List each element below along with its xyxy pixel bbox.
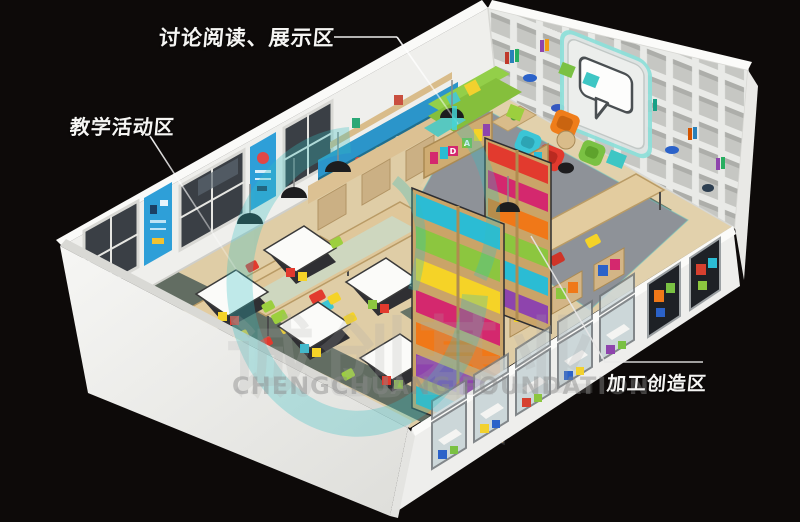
label-making-area: 加工创造区 (606, 369, 708, 396)
callout-marker (452, 106, 457, 130)
label-teaching-area: 教学活动区 (69, 111, 177, 140)
model-plane (523, 74, 537, 82)
model-car (702, 184, 714, 192)
shelf-letter: D (450, 147, 457, 156)
round-table (557, 131, 575, 149)
beanbag (558, 163, 574, 174)
room-illustration: D A M (0, 0, 800, 522)
watermark-latin: CHENGCHUANG FOUNDATION (232, 372, 650, 400)
scene: D A M (0, 0, 800, 522)
model-plane (665, 146, 679, 154)
label-discussion-area: 讨论阅读、展示区 (158, 22, 337, 52)
